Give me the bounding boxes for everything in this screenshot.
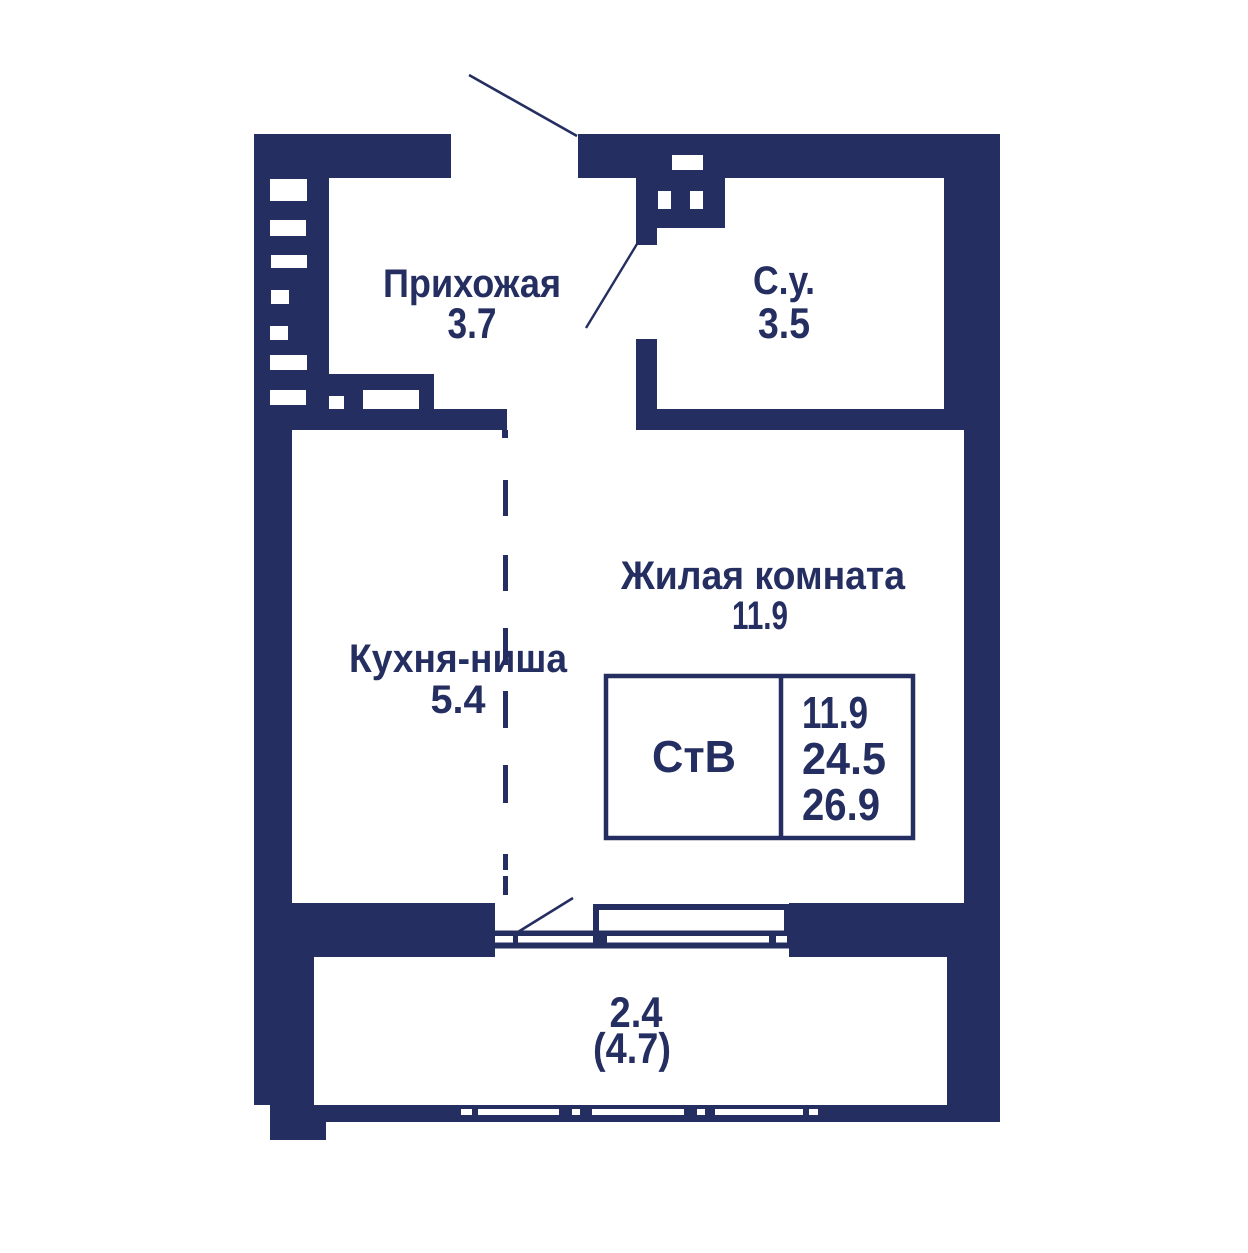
svg-text:11.9: 11.9 bbox=[802, 687, 868, 738]
svg-text:24.5: 24.5 bbox=[802, 733, 886, 784]
svg-text:5.4: 5.4 bbox=[431, 678, 487, 722]
svg-text:26.9: 26.9 bbox=[802, 779, 880, 830]
svg-text:С.у.: С.у. bbox=[753, 259, 815, 303]
svg-text:11.9: 11.9 bbox=[732, 594, 788, 638]
svg-text:Жилая комната: Жилая комната bbox=[620, 554, 906, 598]
svg-text:3.7: 3.7 bbox=[448, 300, 497, 348]
svg-text:Кухня-ниша: Кухня-ниша bbox=[349, 637, 568, 681]
svg-text:(4.7): (4.7) bbox=[593, 1025, 671, 1073]
svg-text:3.5: 3.5 bbox=[758, 300, 810, 348]
svg-text:СтВ: СтВ bbox=[652, 731, 736, 782]
